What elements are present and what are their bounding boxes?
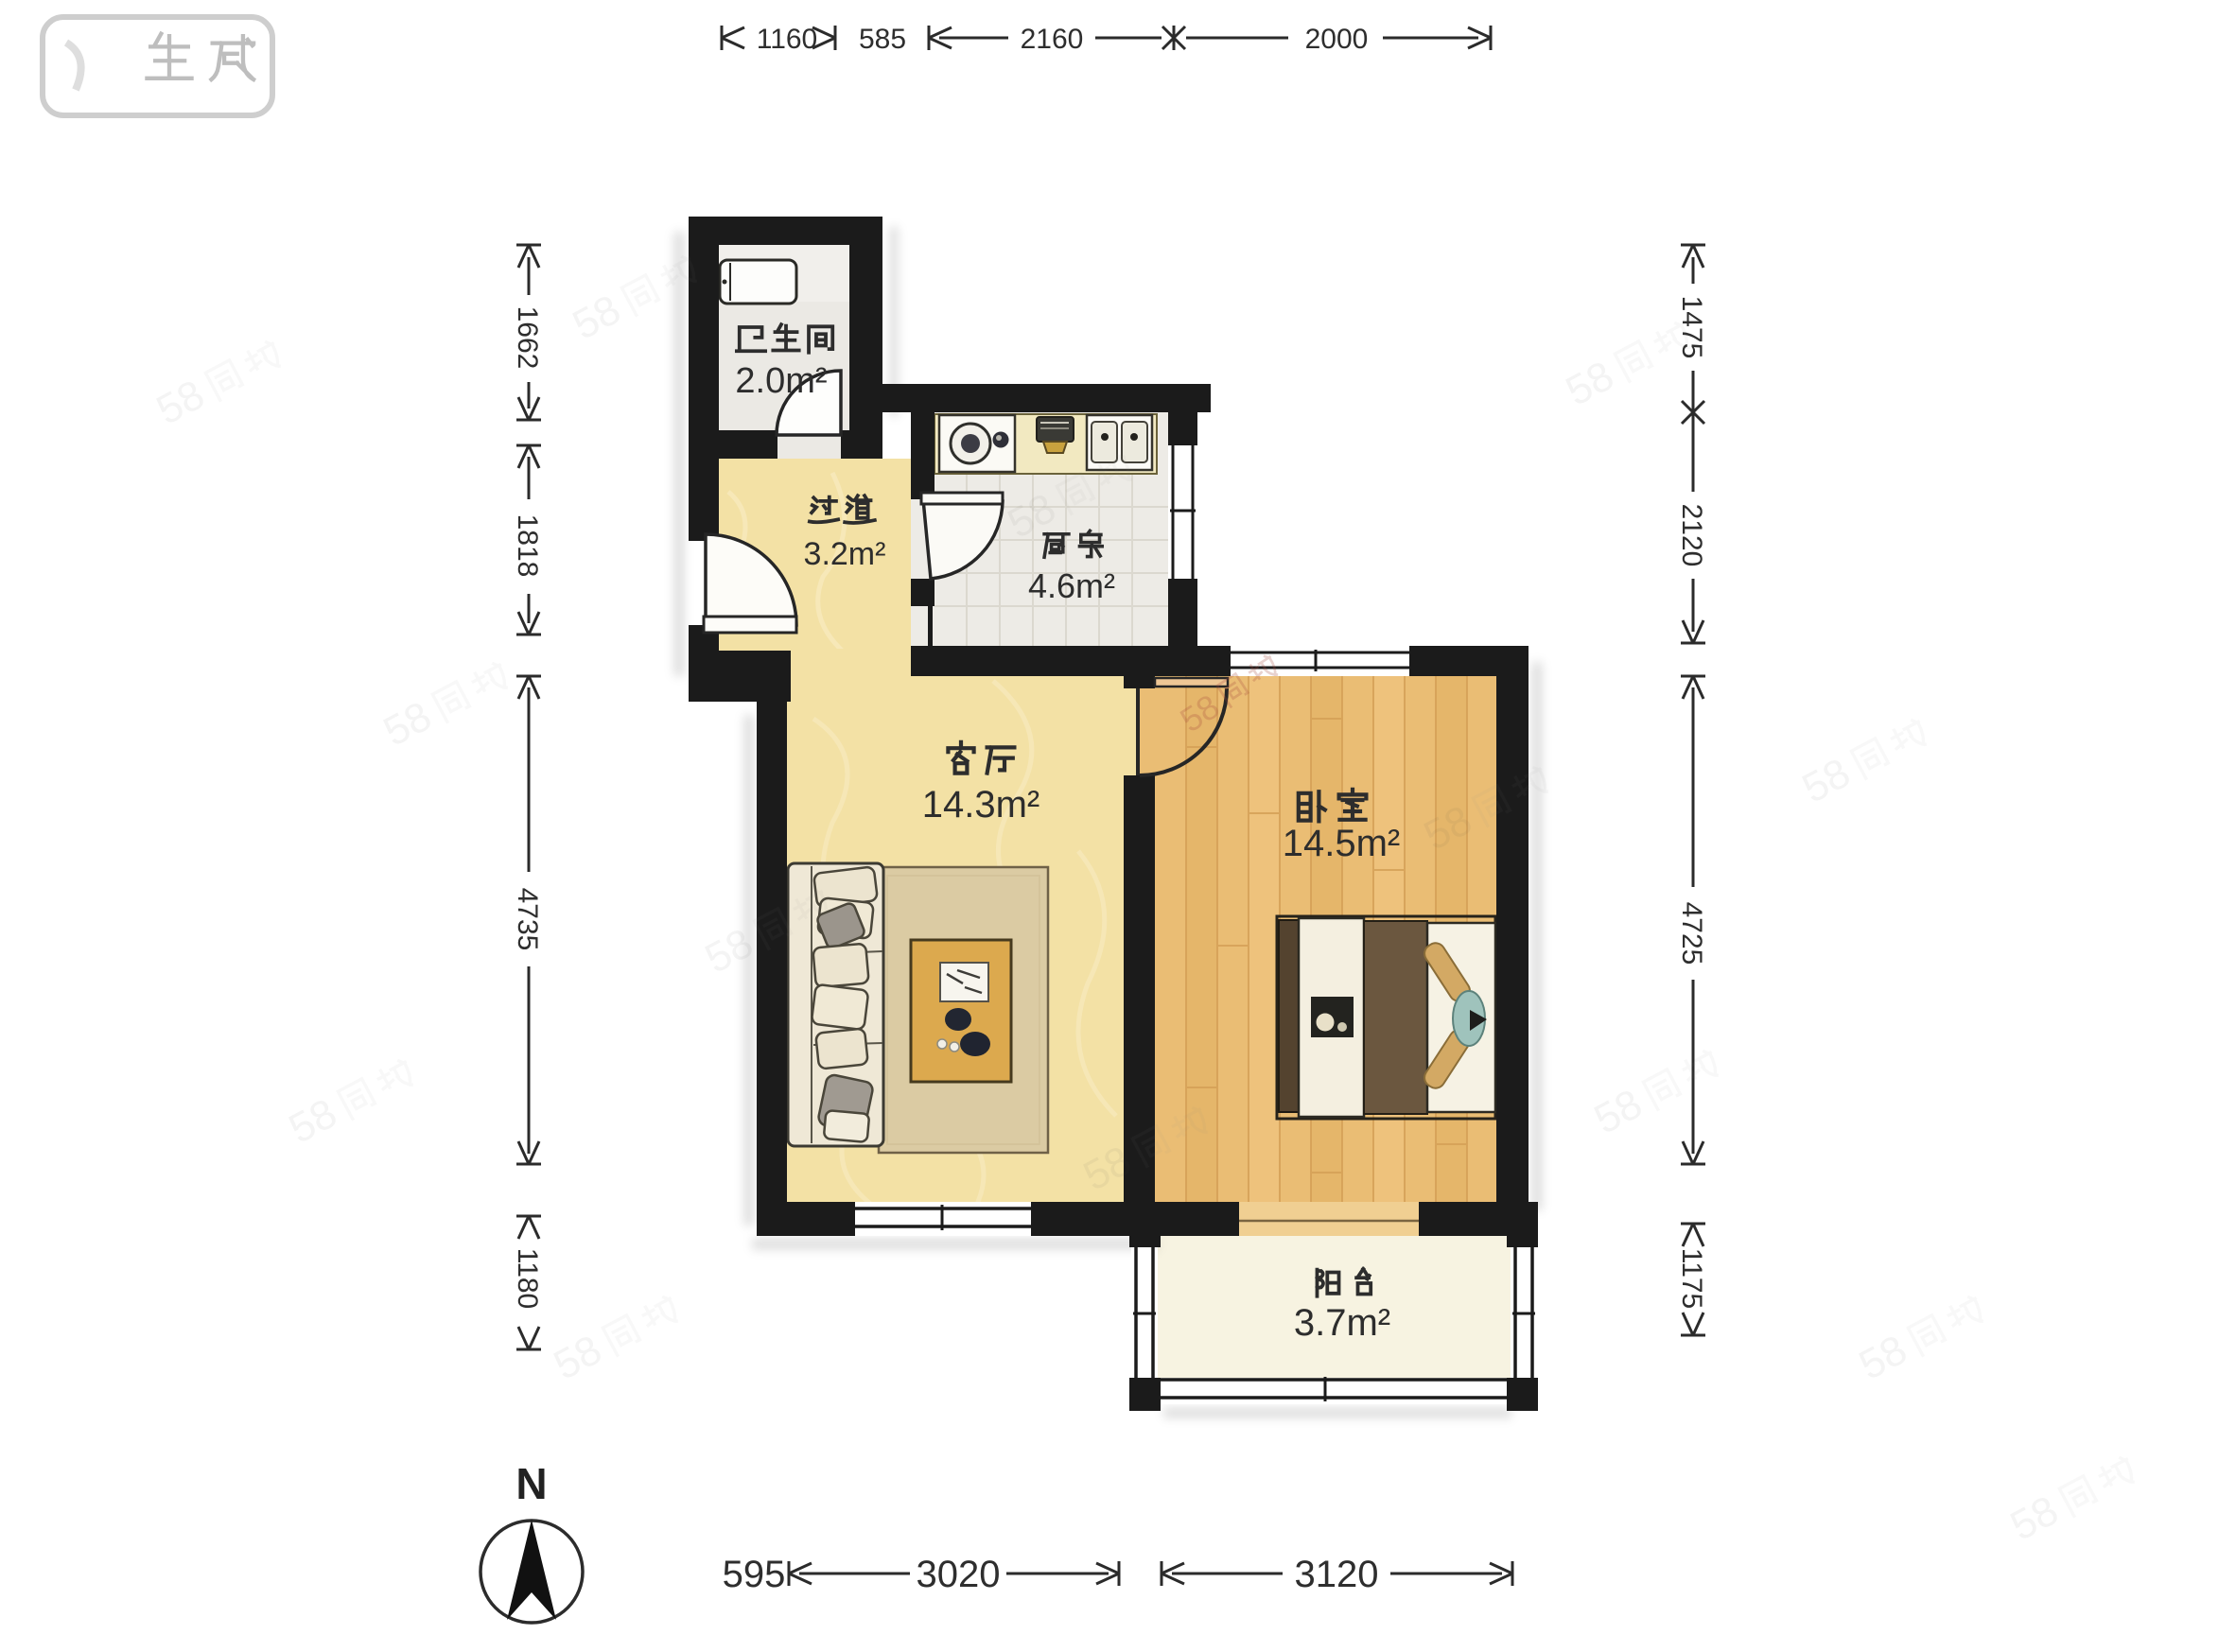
svg-text:585: 585 [859,24,906,55]
svg-text:3120: 3120 [1295,1554,1379,1595]
svg-text:1818: 1818 [512,514,543,578]
svg-text:2160: 2160 [1021,24,1084,55]
svg-text:14.5m²: 14.5m² [1283,823,1401,864]
svg-text:N: N [515,1459,547,1508]
svg-text:2120: 2120 [1676,504,1707,567]
svg-text:1175: 1175 [1676,1248,1707,1310]
svg-text:1160: 1160 [757,24,818,55]
svg-text:2000: 2000 [1305,24,1369,55]
svg-text:2.0m²: 2.0m² [735,361,827,401]
svg-text:4.6m²: 4.6m² [1028,566,1115,605]
svg-text:4725: 4725 [1676,902,1707,965]
svg-text:3020: 3020 [917,1554,1001,1595]
svg-text:14.3m²: 14.3m² [922,784,1040,826]
svg-text:4735: 4735 [512,888,543,951]
svg-text:595: 595 [723,1554,786,1595]
svg-text:3.7m²: 3.7m² [1294,1302,1390,1344]
svg-text:3.2m²: 3.2m² [804,536,886,572]
svg-text:1662: 1662 [512,306,543,370]
svg-text:1180: 1180 [512,1248,543,1310]
